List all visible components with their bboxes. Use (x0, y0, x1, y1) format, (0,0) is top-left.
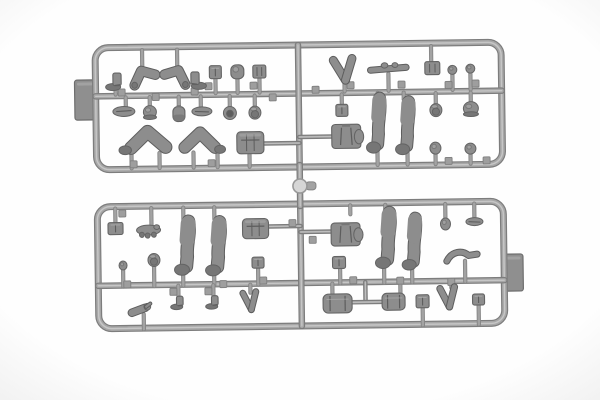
torso (342, 124, 350, 127)
bent-arm (132, 82, 138, 88)
arm-pair-horizontal (392, 63, 398, 68)
head-ball (467, 66, 471, 69)
equipment-cluster (154, 225, 160, 230)
canteen (173, 114, 185, 121)
straight-leg (388, 215, 390, 232)
head (251, 107, 257, 111)
gate-tab (220, 281, 227, 288)
head (150, 258, 157, 265)
arm-pair-horizontal (381, 63, 388, 68)
gate-tab (119, 210, 126, 217)
torso (341, 223, 349, 225)
gate-tab (289, 220, 296, 227)
bent-leg (215, 145, 226, 153)
bedroll-pack (323, 294, 352, 313)
gate-tab (260, 277, 267, 284)
boot (192, 83, 197, 84)
head (251, 110, 258, 117)
torso-with-pack (245, 220, 266, 223)
straight-leg (187, 223, 189, 240)
head (432, 108, 439, 115)
gate-tab (124, 281, 131, 288)
head-ball (120, 263, 123, 266)
straight-leg (375, 257, 390, 269)
boot (191, 72, 199, 85)
gate-tab (445, 81, 452, 88)
hand-arm (132, 308, 145, 313)
straight-leg (366, 142, 380, 153)
gate-tab (205, 288, 212, 295)
sprue-photo-svg (0, 0, 600, 400)
gate-tab (445, 157, 452, 164)
straight-leg (407, 104, 409, 120)
straight-leg (402, 259, 416, 270)
straight-leg (218, 224, 220, 241)
helmet-top (226, 110, 233, 117)
left-mold-tab (77, 82, 94, 85)
straight-leg (174, 264, 189, 275)
sprue-photo (0, 0, 600, 400)
gridded-pouch (425, 62, 440, 75)
gate-tab (309, 236, 316, 243)
boot (113, 73, 121, 86)
straight-leg (205, 265, 220, 276)
gate-tab (483, 157, 490, 164)
bent-arm (182, 81, 188, 87)
canteen (177, 105, 181, 107)
gate-tab (269, 94, 276, 101)
helmet (143, 115, 156, 120)
boot (176, 296, 183, 306)
head (150, 255, 156, 259)
small-pack (382, 293, 405, 310)
straight-leg (378, 100, 380, 117)
torso (354, 129, 363, 144)
gate-tab (312, 86, 319, 93)
straight-leg (395, 144, 409, 155)
torso-with-pack (239, 133, 261, 136)
helmet (466, 104, 472, 109)
right-mold-tab (505, 256, 520, 259)
boot (213, 305, 217, 306)
gate-tab (472, 80, 479, 87)
gate-tab (397, 277, 404, 284)
gate-tab (152, 93, 159, 100)
helmet (463, 112, 478, 117)
straight-leg (414, 220, 416, 236)
head-ball (449, 67, 453, 70)
helmet (145, 108, 150, 112)
gate-tab (208, 160, 215, 167)
arm-pair-horizontal (371, 67, 407, 70)
head (432, 105, 438, 109)
head-ball (432, 144, 436, 148)
bent-leg (119, 146, 132, 155)
equipment-cluster (139, 232, 144, 237)
head-ball (467, 145, 471, 149)
gate-tab (130, 161, 137, 168)
gate-tab (250, 82, 257, 89)
head-ball (442, 220, 446, 224)
gate-tab (170, 288, 177, 295)
gate-tab (350, 277, 357, 284)
round-pouch (233, 67, 239, 73)
runner (263, 143, 299, 144)
boot (211, 296, 218, 306)
injection-knob (293, 179, 307, 193)
field-cap (195, 111, 209, 112)
equipment-cluster (145, 233, 150, 238)
gate-tab (398, 81, 405, 88)
field-cap (469, 221, 481, 222)
torso (354, 228, 363, 242)
equipment-cluster (151, 232, 156, 237)
gridded-pouch (253, 65, 266, 78)
boot (178, 305, 182, 306)
gate-tab (118, 89, 125, 96)
